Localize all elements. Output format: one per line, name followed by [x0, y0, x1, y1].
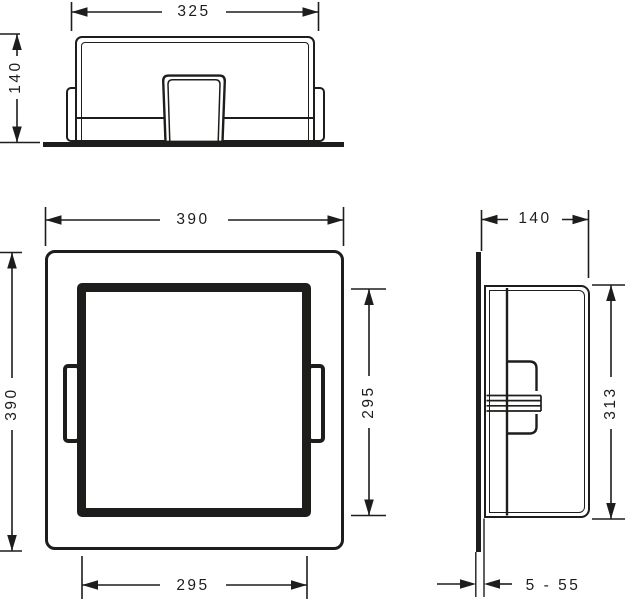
- top-view-flange: [43, 142, 344, 147]
- arrow-left-icon: [484, 579, 500, 589]
- dim-side-tile-range: [437, 519, 512, 598]
- top-view-shelf-line: [77, 117, 313, 119]
- top-view-left-clip: [66, 87, 78, 142]
- top-view-box-inner-wall: [81, 42, 309, 142]
- arrow-up-icon: [606, 285, 616, 301]
- arrow-left-icon: [482, 215, 498, 225]
- side-view-flange: [476, 252, 481, 552]
- arrow-left-icon: [72, 7, 88, 17]
- arrow-right-icon: [460, 579, 476, 589]
- arrow-right-icon: [573, 215, 589, 225]
- dim-side-tile-range-label: 5 - 55: [526, 577, 581, 595]
- dim-top-width-label: 325: [177, 3, 210, 21]
- dim-front-opening-height-label: 295: [360, 385, 378, 418]
- front-view-opening-frame: [77, 283, 311, 517]
- arrow-down-icon: [606, 503, 616, 519]
- technical-drawing-canvas: 325 140 390 390 295 295 140 313 5 - 55: [0, 0, 625, 600]
- arrow-up-icon: [7, 253, 17, 269]
- arrow-down-icon: [364, 500, 374, 516]
- arrow-down-icon: [7, 535, 17, 551]
- arrow-left-icon: [82, 580, 98, 590]
- dim-side-height-label: 313: [602, 386, 620, 419]
- arrow-up-icon: [364, 289, 374, 305]
- front-view-right-tab: [307, 364, 325, 443]
- arrow-right-icon: [291, 580, 307, 590]
- arrow-down-icon: [12, 127, 22, 143]
- side-view-box-inner-wall: [489, 290, 585, 513]
- dim-side-depth-label: 140: [518, 210, 551, 228]
- arrow-up-icon: [12, 34, 22, 50]
- top-view-right-clip: [313, 87, 325, 142]
- dim-front-width-label: 390: [176, 211, 209, 229]
- dim-top-height-label: 140: [7, 60, 25, 93]
- dim-front-height-label: 390: [3, 387, 21, 420]
- dim-front-opening-width-label: 295: [176, 577, 209, 595]
- front-view-left-tab: [63, 364, 81, 443]
- arrow-right-icon: [303, 7, 319, 17]
- arrow-right-icon: [328, 215, 344, 225]
- arrow-left-icon: [46, 215, 62, 225]
